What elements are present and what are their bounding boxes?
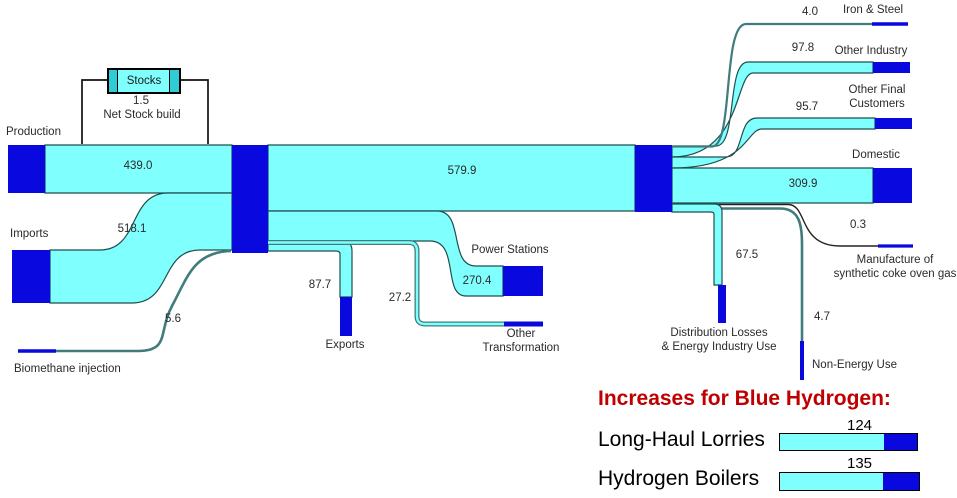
- boilers-value: 135: [847, 455, 872, 472]
- lorries-bar-blue: [884, 434, 917, 450]
- flow-imports: [50, 193, 232, 303]
- non-energy-label: Non-Energy Use: [812, 359, 897, 372]
- other-industry-value: 97.8: [792, 42, 814, 55]
- imports-value: 518.1: [118, 223, 147, 236]
- power-stations-value: 270.4: [463, 275, 492, 288]
- distribution-label: Distribution Losses & Energy Industry Us…: [661, 326, 776, 354]
- iron-steel-value: 4.0: [802, 6, 818, 19]
- boilers-bar-cyan: [780, 473, 883, 490]
- flow-main-579: [268, 145, 635, 211]
- lorries-bar: [779, 433, 918, 451]
- exports-value: 87.7: [309, 279, 331, 292]
- production-node: [8, 145, 45, 193]
- domestic-value: 309.9: [789, 178, 818, 191]
- production-value: 439.0: [124, 160, 153, 173]
- stocks-node: Stocks: [107, 68, 181, 94]
- production-label: Production: [6, 126, 61, 139]
- coke-value: 0.3: [850, 219, 866, 232]
- flow-distribution-losses: [672, 204, 722, 285]
- domestic-label: Domestic: [852, 149, 900, 162]
- other-final-label: Other Final Customers: [849, 83, 906, 111]
- boilers-bar: [779, 472, 920, 491]
- power-stations-label: Power Stations: [471, 244, 548, 257]
- main-flow-value: 579.9: [448, 165, 477, 178]
- distribution-node: [718, 285, 726, 323]
- other-final-node: [875, 118, 912, 129]
- stocks-label: Stocks: [127, 75, 162, 87]
- biomethane-value: 5.6: [165, 313, 181, 326]
- flow-other-industry: [672, 62, 873, 157]
- network-node: [232, 145, 268, 253]
- flow-other-final-customers: [672, 118, 875, 168]
- lorries-value: 124: [847, 417, 872, 434]
- other-industry-node: [873, 62, 910, 73]
- lorries-bar-cyan: [780, 434, 884, 450]
- flow-domestic: [672, 168, 873, 203]
- non-energy-value: 4.7: [814, 311, 830, 324]
- stock-value: 1.5: [133, 95, 149, 108]
- sankey-diagram-canvas: Stocks Production 1.5 Net Stock build 43…: [0, 0, 957, 498]
- lorries-label: Long-Haul Lorries: [598, 428, 765, 452]
- other-transformation-value: 27.2: [389, 292, 411, 305]
- iron-steel-label: Iron & Steel: [843, 4, 903, 17]
- other-final-value: 95.7: [796, 101, 818, 114]
- exports-node: [340, 297, 352, 336]
- coke-label: Manufacture of synthetic coke oven gas: [834, 253, 957, 281]
- stock-caption: Net Stock build: [103, 109, 180, 122]
- domestic-node: [873, 168, 912, 203]
- consumers-node: [635, 145, 672, 212]
- legend-title: Increases for Blue Hydrogen:: [598, 387, 891, 411]
- boilers-bar-blue: [883, 473, 919, 490]
- biomethane-label: Biomethane injection: [14, 363, 121, 376]
- imports-node: [12, 250, 50, 303]
- imports-label: Imports: [10, 228, 48, 241]
- power-stations-node: [503, 266, 543, 296]
- other-transformation-label: Other Transformation: [483, 327, 560, 355]
- distribution-value: 67.5: [736, 249, 758, 262]
- other-industry-label: Other Industry: [835, 45, 908, 58]
- stock-line-right: [178, 80, 208, 144]
- exports-label: Exports: [326, 339, 365, 352]
- boilers-label: Hydrogen Boilers: [598, 467, 759, 491]
- flow-non-energy-line: [672, 209, 802, 343]
